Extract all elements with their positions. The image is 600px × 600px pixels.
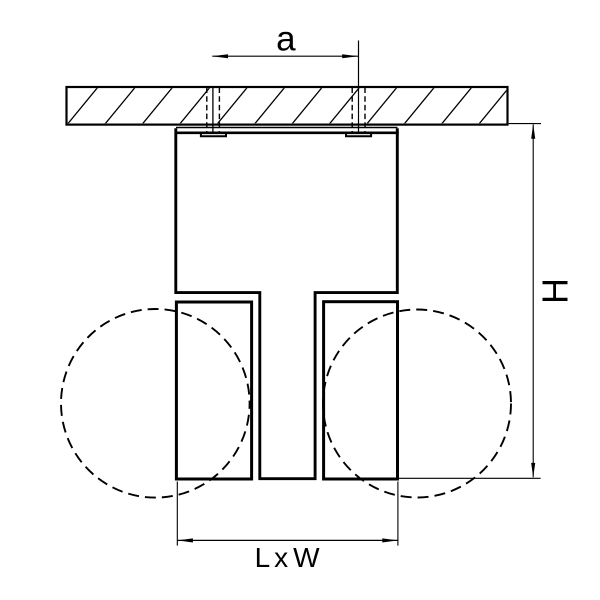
- svg-text:H: H: [535, 278, 576, 304]
- svg-text:L x W: L x W: [255, 542, 320, 573]
- svg-text:a: a: [276, 20, 296, 59]
